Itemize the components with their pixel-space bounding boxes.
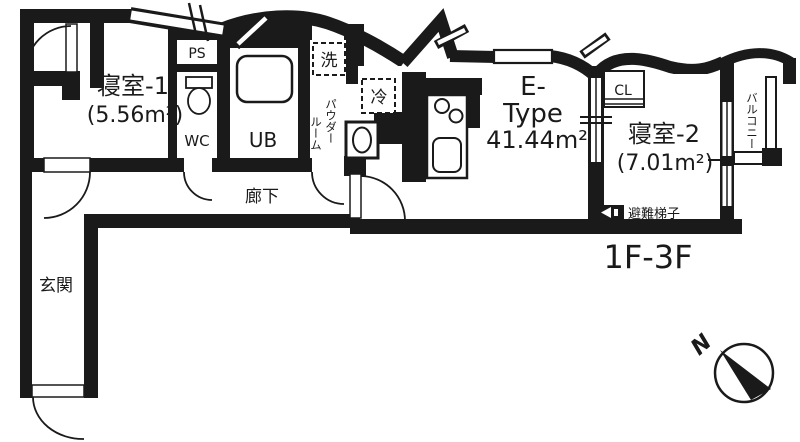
evac-ladder-label: 避難梯子 bbox=[628, 207, 680, 222]
compass: N bbox=[686, 330, 773, 402]
etype-door-leaf bbox=[350, 174, 361, 218]
bedroom2-area: (7.01m²) bbox=[617, 151, 713, 176]
powder-door-arc bbox=[312, 172, 344, 204]
balcony-railing bbox=[766, 77, 776, 157]
floor-range-label: 1F-3F bbox=[603, 238, 692, 276]
balcony-label: バルコニー bbox=[745, 92, 759, 150]
bedroom1-door-arc bbox=[44, 172, 90, 218]
bedroom1-label: 寝室-1 bbox=[97, 72, 169, 100]
bedroom1-area: (5.56m²) bbox=[87, 103, 183, 128]
etype-window bbox=[494, 50, 552, 63]
wall-closet-stub bbox=[62, 71, 80, 100]
wc-door-gap bbox=[184, 158, 212, 172]
powder-room-label-col2: ルーム bbox=[309, 116, 323, 151]
wall-unit-bottom bbox=[350, 219, 742, 234]
washer-label: 洗 bbox=[321, 51, 338, 71]
wall-balcony-corner-cap bbox=[783, 58, 796, 84]
stove-burner1-icon bbox=[435, 99, 449, 113]
basin-bowl-icon bbox=[353, 128, 371, 153]
closet-door-leaf bbox=[66, 24, 77, 72]
kitchen-sink-icon bbox=[433, 138, 461, 172]
wall-entrance-left bbox=[20, 172, 32, 398]
stove-burner2-icon bbox=[450, 110, 463, 123]
unit-type-line2: Type bbox=[502, 99, 563, 129]
wall-left bbox=[20, 12, 34, 172]
ps-label: PS bbox=[188, 46, 205, 62]
wall-entrance-right bbox=[84, 216, 98, 388]
bathtub-icon bbox=[237, 56, 292, 102]
powder-door-gap bbox=[312, 158, 344, 172]
ub-label: UB bbox=[249, 128, 277, 152]
wall-etype-left-top bbox=[450, 56, 496, 57]
cl-label: CL bbox=[614, 83, 632, 99]
wc-door-arc bbox=[184, 172, 212, 200]
bedroom2-label: 寝室-2 bbox=[628, 120, 700, 148]
entrance-label: 玄関 bbox=[39, 276, 73, 296]
entrance-door-arc bbox=[33, 397, 84, 439]
evac-hatch-bar bbox=[614, 209, 618, 216]
wall-corridor-bottom bbox=[84, 214, 360, 228]
wall-top-left bbox=[20, 9, 136, 23]
balcony-corner-post bbox=[762, 148, 782, 166]
entrance-door-leaf bbox=[32, 385, 84, 397]
wall-entrance-jamb bbox=[84, 384, 98, 398]
fridge-label: 冷 bbox=[371, 88, 388, 108]
toilet-tank-icon bbox=[186, 77, 212, 88]
unit-area: 41.44m² bbox=[486, 126, 588, 154]
unit-type-line1: E- bbox=[520, 72, 546, 102]
bedroom1-door-leaf bbox=[44, 158, 90, 172]
wc-label: WC bbox=[184, 132, 209, 150]
floor-plan-drawing: N 寝室-1 (5.56m²) E- Type 41.44m² 寝室-2 (7.… bbox=[0, 0, 800, 442]
compass-north-label: N bbox=[686, 330, 716, 361]
toilet-bowl-icon bbox=[188, 88, 210, 114]
corridor-label: 廊下 bbox=[245, 187, 279, 207]
powder-room-label-col1: パウダー bbox=[324, 98, 338, 144]
floor-plan-page: N 寝室-1 (5.56m²) E- Type 41.44m² 寝室-2 (7.… bbox=[0, 0, 800, 442]
